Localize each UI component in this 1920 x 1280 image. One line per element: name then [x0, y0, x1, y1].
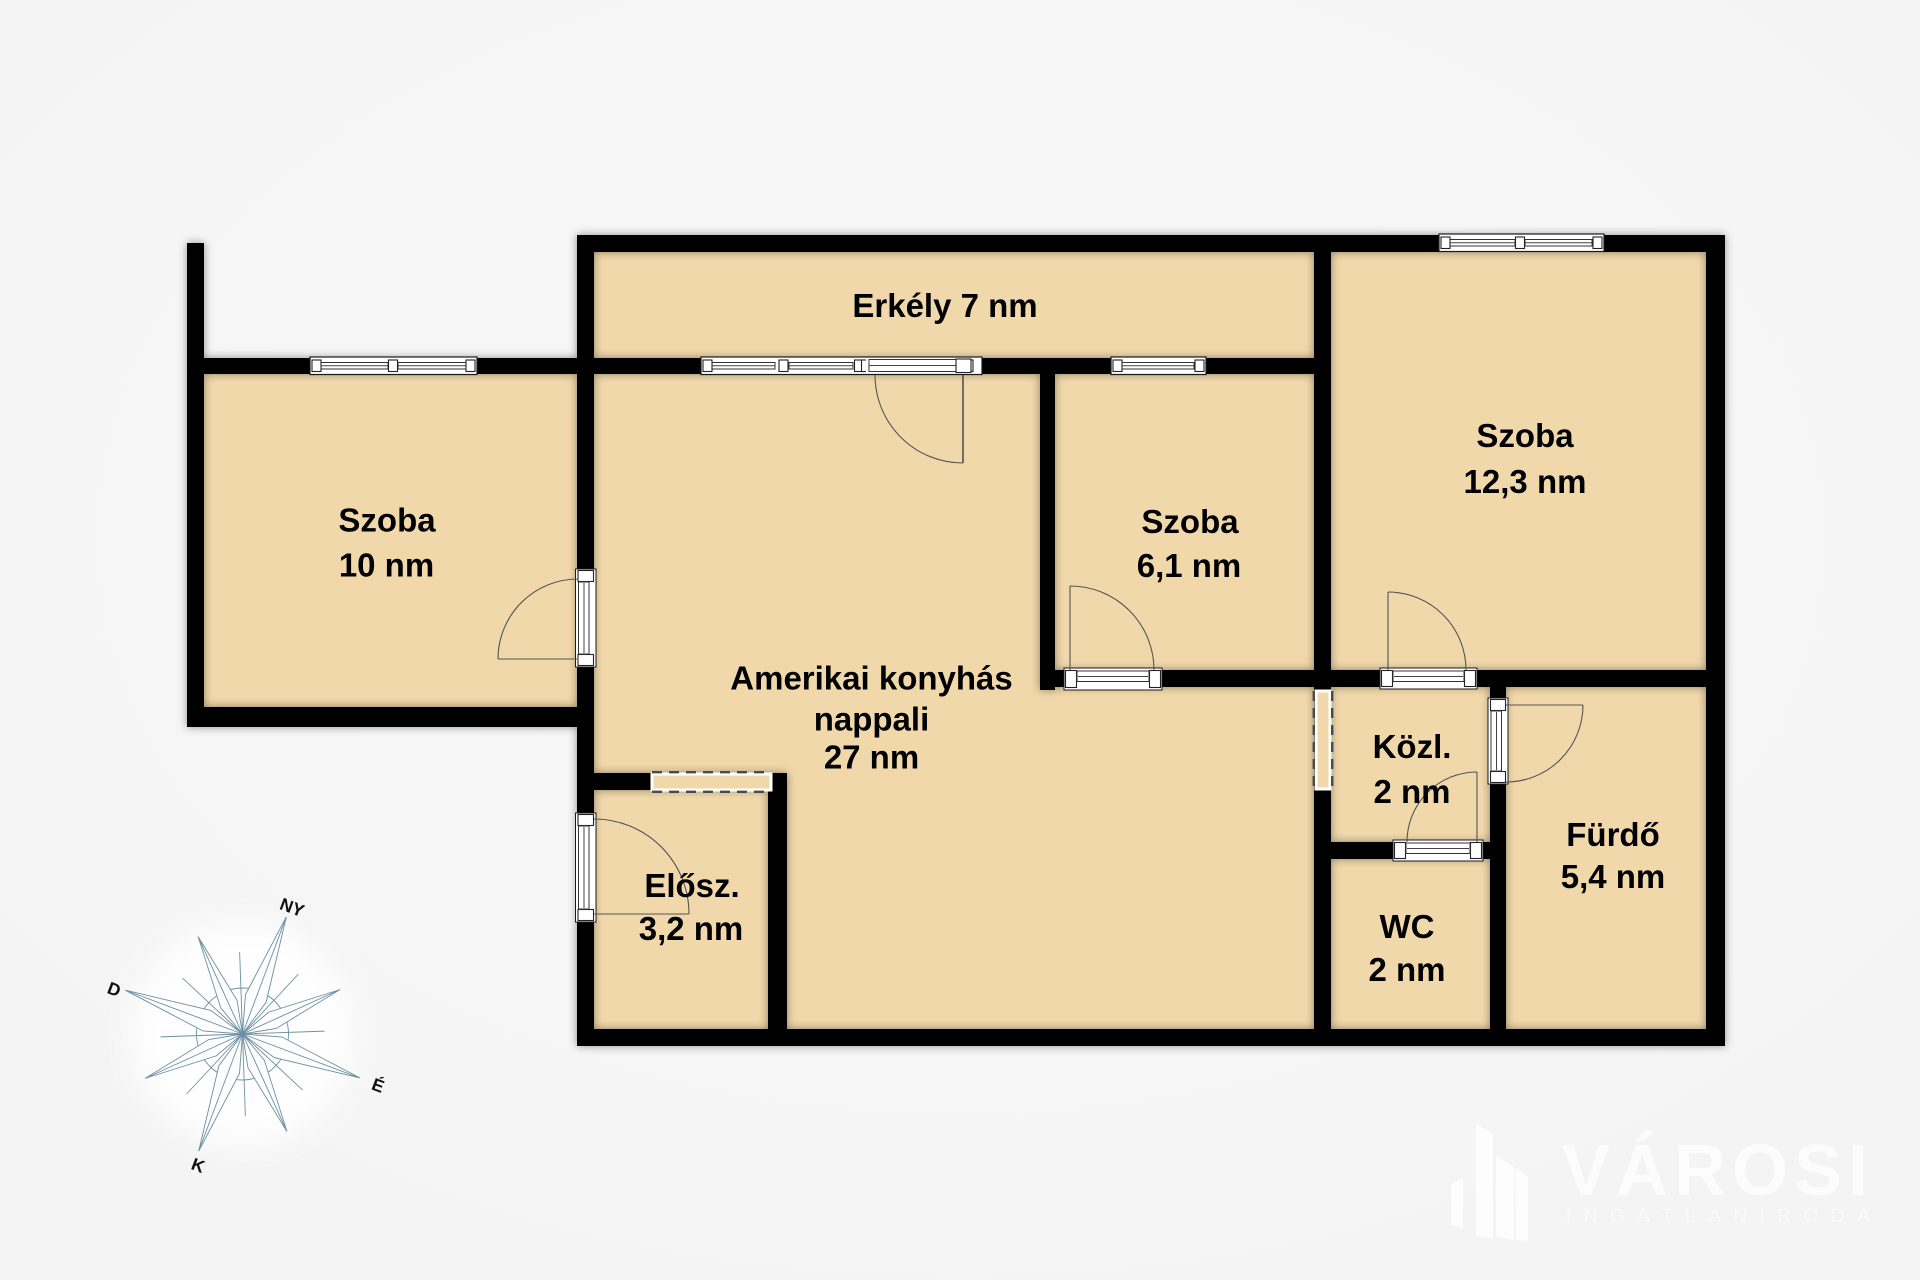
svg-text:Fürdő: Fürdő: [1566, 816, 1659, 853]
svg-text:10 nm: 10 nm: [339, 547, 434, 584]
svg-text:Elősz.: Elősz.: [644, 867, 739, 904]
svg-text:3,2 nm: 3,2 nm: [639, 910, 744, 947]
svg-text:Szoba: Szoba: [1141, 503, 1239, 540]
svg-text:2 nm: 2 nm: [1368, 951, 1445, 988]
svg-text:INGATLANIRODA: INGATLANIRODA: [1566, 1206, 1882, 1227]
svg-text:6,1 nm: 6,1 nm: [1137, 547, 1242, 584]
svg-text:27 nm: 27 nm: [824, 739, 919, 776]
svg-text:Közl.: Közl.: [1373, 728, 1452, 765]
svg-text:2 nm: 2 nm: [1373, 773, 1450, 810]
svg-text:12,3 nm: 12,3 nm: [1464, 463, 1587, 500]
svg-text:Szoba: Szoba: [338, 502, 436, 539]
svg-text:VÁROSI: VÁROSI: [1562, 1131, 1874, 1211]
svg-text:5,4 nm: 5,4 nm: [1561, 858, 1666, 895]
svg-text:Erkély 7 nm: Erkély 7 nm: [852, 287, 1037, 324]
svg-text:nappali: nappali: [814, 701, 930, 738]
svg-text:Amerikai konyhás: Amerikai konyhás: [730, 660, 1012, 697]
svg-text:WC: WC: [1380, 908, 1435, 945]
svg-text:Szoba: Szoba: [1476, 417, 1574, 454]
